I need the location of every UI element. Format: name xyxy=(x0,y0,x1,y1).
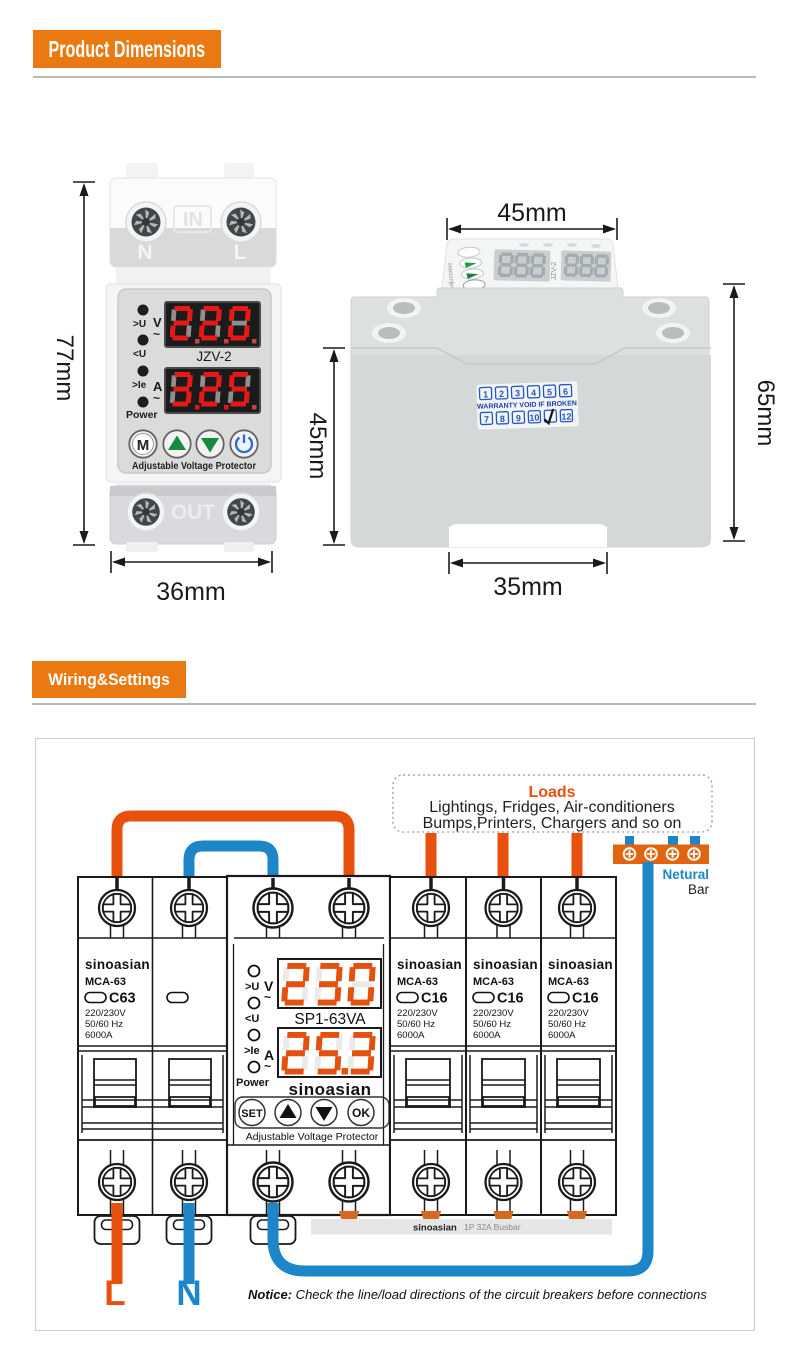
svg-text:220/230V: 220/230V xyxy=(548,1008,589,1019)
svg-text:L: L xyxy=(104,1274,125,1313)
svg-text:sinoasian: sinoasian xyxy=(413,1223,457,1234)
svg-text:Lightings, Fridges, Air-condit: Lightings, Fridges, Air-conditioners xyxy=(429,799,674,816)
svg-text:JZV-2: JZV-2 xyxy=(551,262,558,280)
svg-text:9: 9 xyxy=(516,413,521,423)
svg-text:sinoasian: sinoasian xyxy=(473,957,538,972)
svg-text:MCA-63: MCA-63 xyxy=(548,976,589,988)
svg-text:SET: SET xyxy=(241,1108,263,1120)
svg-text:6000A: 6000A xyxy=(397,1030,425,1041)
svg-text:N: N xyxy=(176,1274,201,1313)
svg-text:220/230V: 220/230V xyxy=(473,1008,514,1019)
svg-text:50/60 Hz: 50/60 Hz xyxy=(548,1019,586,1030)
svg-text:4: 4 xyxy=(531,388,536,398)
svg-text:JZV-2: JZV-2 xyxy=(196,349,231,364)
svg-text:L: L xyxy=(234,241,247,264)
svg-text:C16: C16 xyxy=(497,991,524,1007)
svg-text:~: ~ xyxy=(264,990,271,1004)
svg-text:6000A: 6000A xyxy=(85,1030,113,1041)
svg-text:6000A: 6000A xyxy=(473,1030,501,1041)
svg-text:Adjustable Voltage Protector: Adjustable Voltage Protector xyxy=(132,460,256,472)
svg-text:C16: C16 xyxy=(572,991,599,1007)
svg-text:6: 6 xyxy=(563,387,568,397)
svg-text:Netural: Netural xyxy=(662,867,709,882)
svg-text:50/60 Hz: 50/60 Hz xyxy=(397,1019,435,1030)
svg-text:1: 1 xyxy=(483,389,488,399)
svg-text:~: ~ xyxy=(264,1059,271,1073)
svg-text:10: 10 xyxy=(529,413,539,423)
svg-text:50/60 Hz: 50/60 Hz xyxy=(473,1019,511,1030)
svg-text:35mm: 35mm xyxy=(493,573,562,601)
svg-text:220/230V: 220/230V xyxy=(85,1008,126,1019)
svg-text:>U: >U xyxy=(245,981,259,993)
svg-text:Bar: Bar xyxy=(688,882,710,897)
svg-text:Power: Power xyxy=(236,1077,270,1089)
svg-text:MCA-63: MCA-63 xyxy=(473,976,514,988)
svg-text:<U: <U xyxy=(245,1013,259,1025)
svg-text:2: 2 xyxy=(499,389,504,399)
svg-text:12: 12 xyxy=(561,411,571,421)
svg-text:65mm: 65mm xyxy=(752,380,779,447)
svg-text:sinoasian: sinoasian xyxy=(289,1080,372,1099)
svg-text:50/60 Hz: 50/60 Hz xyxy=(85,1019,123,1030)
svg-text:M: M xyxy=(137,437,150,454)
svg-text:>U: >U xyxy=(133,319,146,330)
svg-text:Notice: Check the line/load di: Notice: Check the line/load directions o… xyxy=(248,1287,707,1302)
svg-text:<U: <U xyxy=(133,349,146,360)
svg-text:1P 32A Busbar: 1P 32A Busbar xyxy=(464,1222,521,1232)
svg-text:C63: C63 xyxy=(109,991,136,1007)
svg-text:>Ie: >Ie xyxy=(132,380,147,391)
svg-text:7: 7 xyxy=(484,414,489,424)
svg-text:C16: C16 xyxy=(421,991,448,1007)
svg-text:sinoasian: sinoasian xyxy=(85,957,150,972)
svg-text:Adjustable Voltage Protector: Adjustable Voltage Protector xyxy=(246,1131,379,1143)
svg-text:45mm: 45mm xyxy=(304,413,331,480)
svg-text:OUT: OUT xyxy=(171,501,216,524)
svg-text:8: 8 xyxy=(500,414,505,424)
svg-text:~: ~ xyxy=(153,391,160,405)
svg-text:N: N xyxy=(137,241,152,264)
svg-text:Bumps,Printers, Chargers and s: Bumps,Printers, Chargers and so on xyxy=(423,815,682,832)
svg-text:sinoasian: sinoasian xyxy=(397,957,462,972)
svg-text:MCA-63: MCA-63 xyxy=(85,976,126,988)
svg-text:~: ~ xyxy=(153,327,160,341)
svg-text:77mm: 77mm xyxy=(51,335,78,402)
svg-text:3: 3 xyxy=(515,388,520,398)
svg-text:36mm: 36mm xyxy=(156,578,225,606)
svg-text:OK: OK xyxy=(352,1106,370,1120)
svg-text:IN: IN xyxy=(183,209,203,231)
svg-text:SP1-63VA: SP1-63VA xyxy=(294,1011,366,1028)
svg-text:>Ie: >Ie xyxy=(244,1045,260,1057)
svg-text:5: 5 xyxy=(547,387,552,397)
svg-text:MCA-63: MCA-63 xyxy=(397,976,438,988)
svg-text:45mm: 45mm xyxy=(497,199,566,227)
svg-text:6000A: 6000A xyxy=(548,1030,576,1041)
svg-text:sinoasian: sinoasian xyxy=(548,957,613,972)
svg-text:220/230V: 220/230V xyxy=(397,1008,438,1019)
svg-text:Power: Power xyxy=(126,409,158,421)
